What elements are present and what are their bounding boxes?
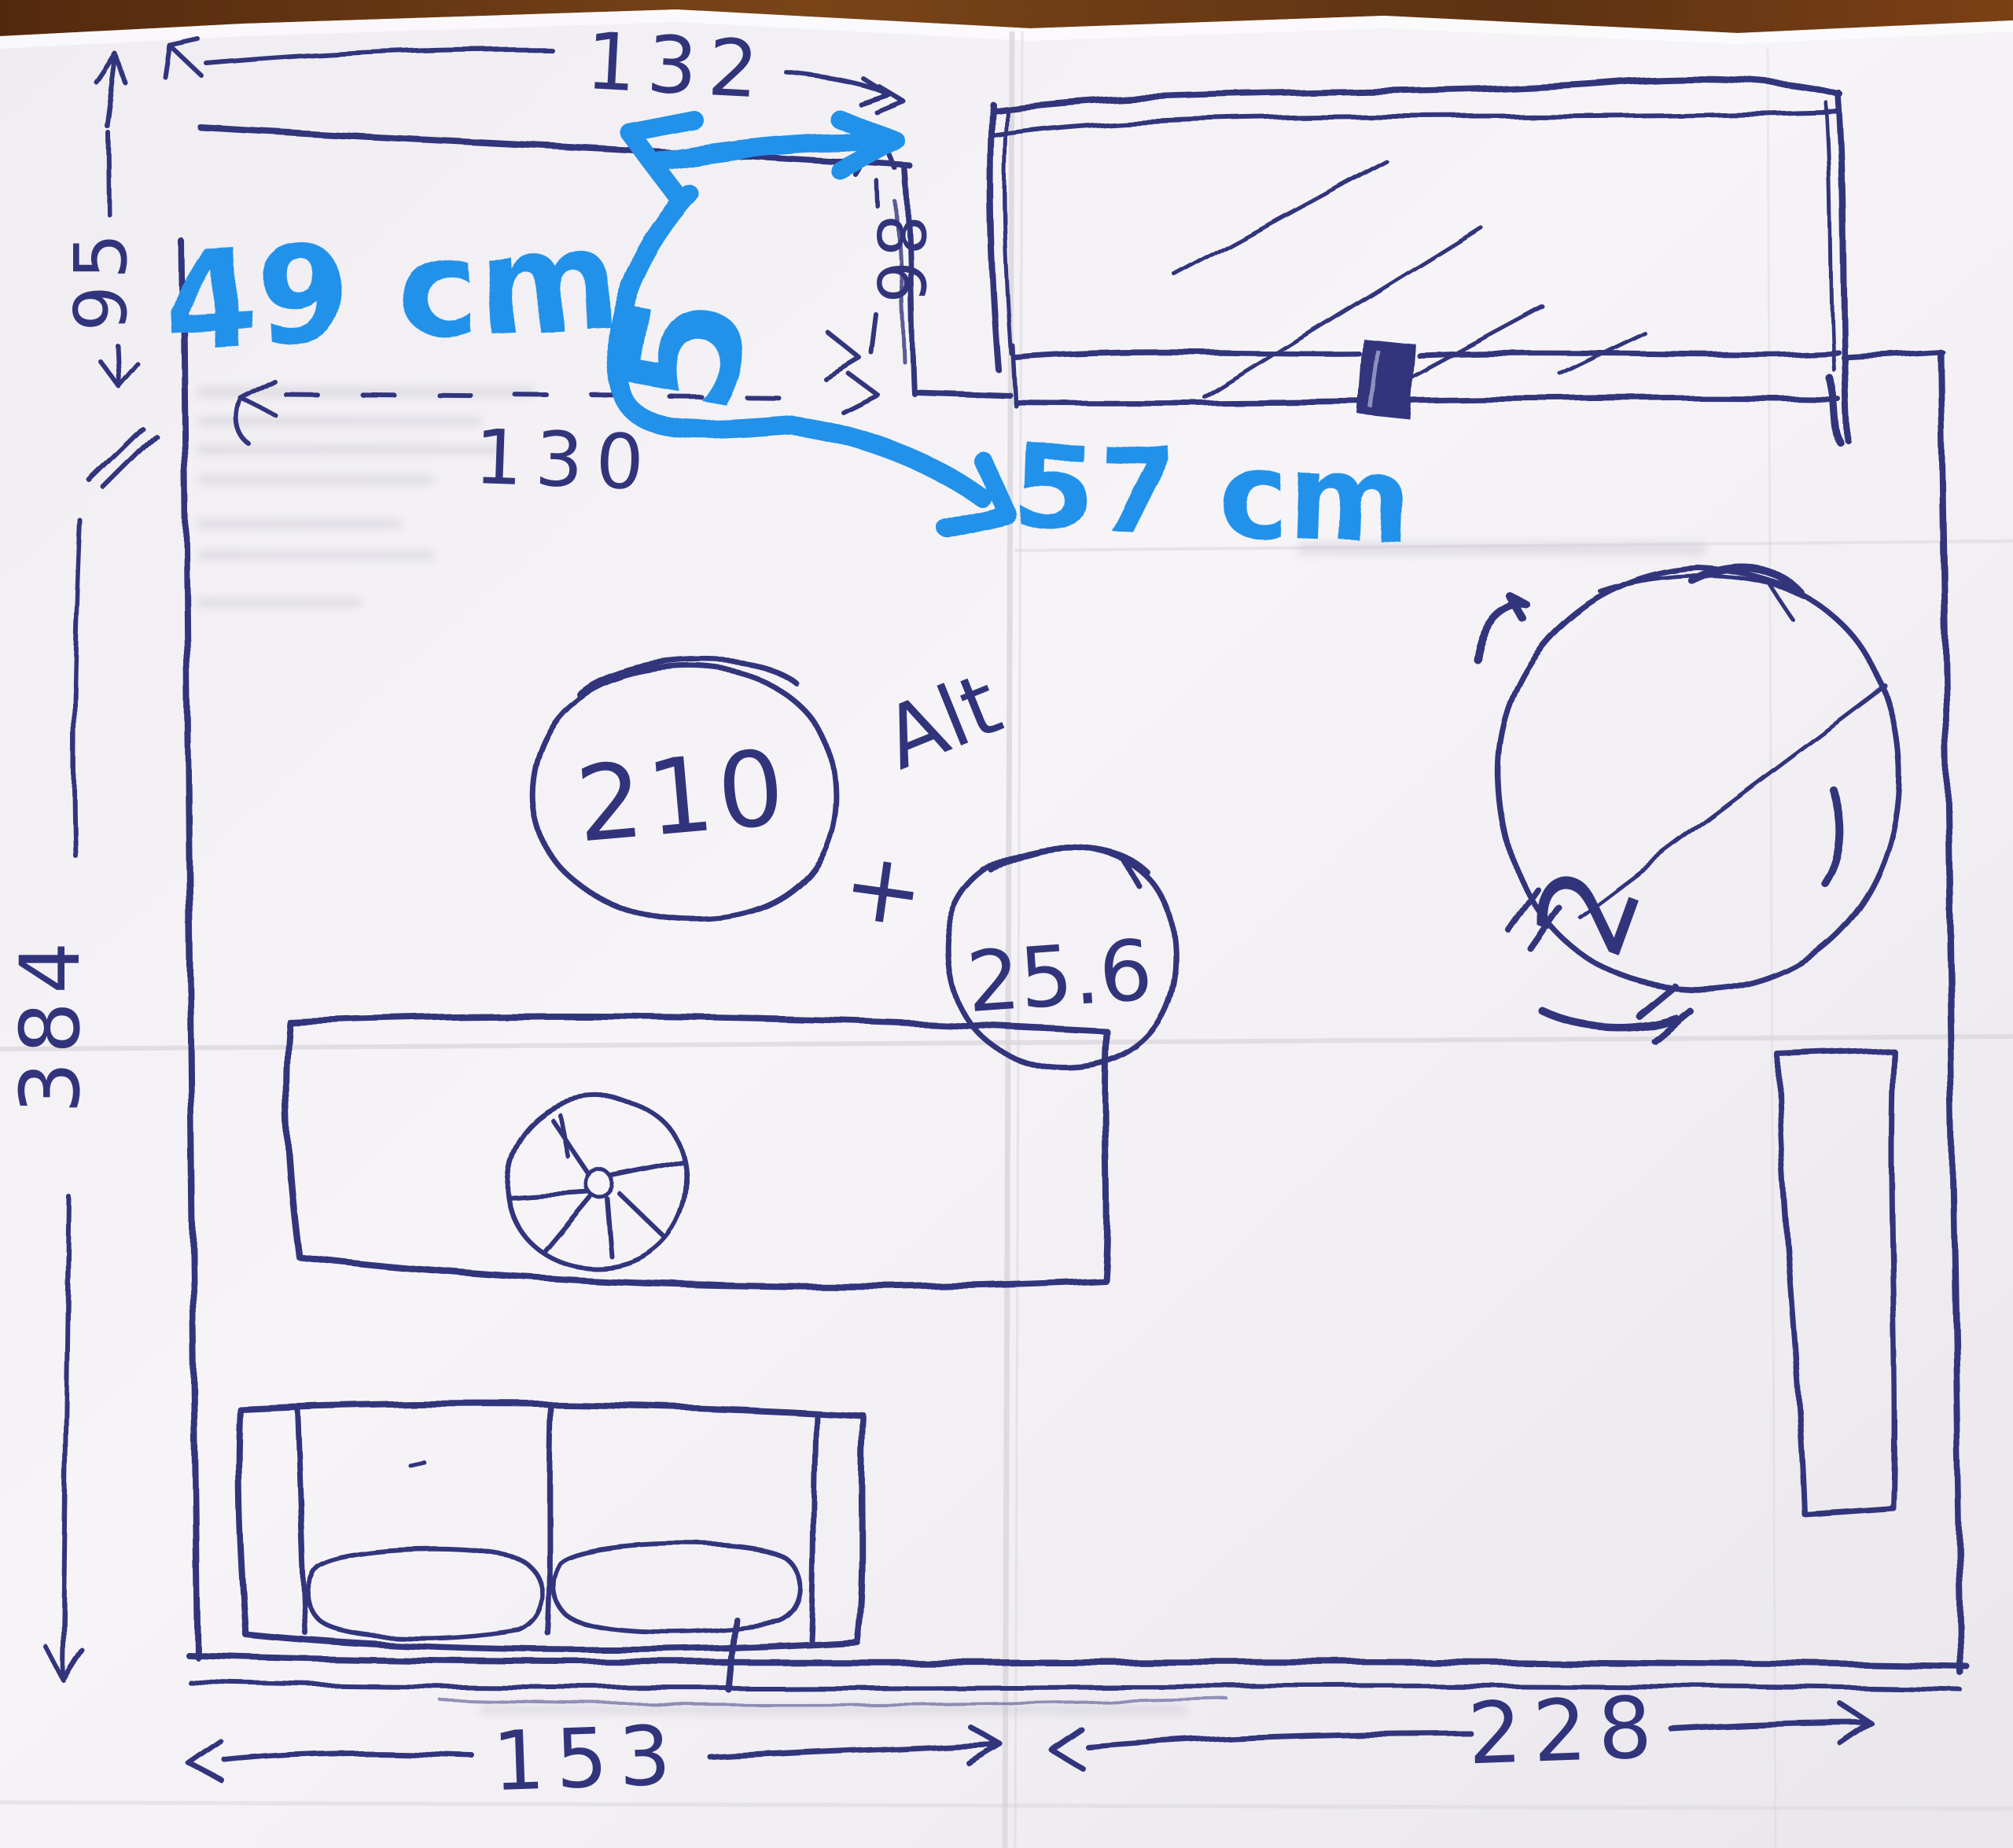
label-153: 153 xyxy=(491,1707,683,1809)
marker-label-57cm: 57 cm xyxy=(1011,419,1414,570)
label-86: 86 xyxy=(862,215,939,308)
window-handle xyxy=(1357,338,1415,419)
marker-label-49cm: 49 cm xyxy=(159,201,623,382)
sofa-divider xyxy=(547,1406,550,1633)
label-228: 228 xyxy=(1467,1679,1665,1784)
label-384: 384 xyxy=(2,934,98,1114)
floor-plan-sketch: 132 95 86 130 384 153 228 210 Alt + 25.6… xyxy=(0,0,2013,1848)
label-210: 210 xyxy=(572,727,793,867)
label-130: 130 xyxy=(473,413,658,507)
label-95: 95 xyxy=(59,226,143,331)
label-25-6: 25.6 xyxy=(963,922,1155,1031)
floor-plan-photo: 132 95 86 130 384 153 228 210 Alt + 25.6… xyxy=(0,0,2013,1848)
label-plus: + xyxy=(836,828,931,950)
label-132: 132 xyxy=(583,15,771,116)
